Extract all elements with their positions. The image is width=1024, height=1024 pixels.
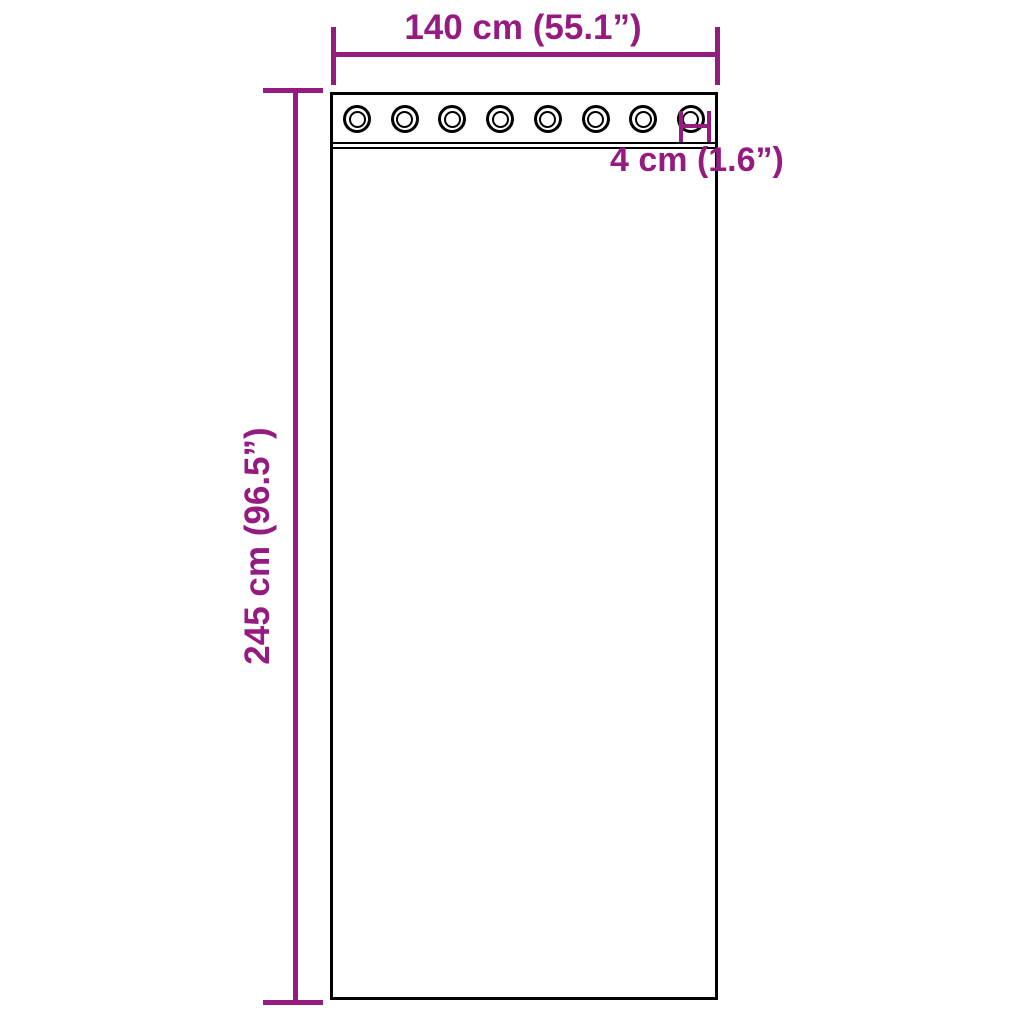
grommet-inner-ring (396, 111, 413, 128)
width-dimension-tick-right (715, 27, 720, 85)
grommet-inner-ring (492, 111, 509, 128)
grommet-dimension-line (679, 124, 711, 128)
grommet-icon (629, 105, 657, 133)
grommet-inner-ring (635, 111, 652, 128)
grommet-inner-ring (539, 111, 556, 128)
diagram-canvas: 140 cm (55.1”) 245 cm (96.5”) 4 cm (1.6”… (0, 0, 1024, 1024)
grommet-icon (534, 105, 562, 133)
height-dimension-tick-top (263, 88, 323, 93)
grommet-icon (391, 105, 419, 133)
curtain-panel (330, 92, 718, 1000)
height-dimension-tick-bottom (263, 1000, 323, 1005)
width-dimension-tick-left (331, 27, 336, 85)
grommet-inner-ring (587, 111, 604, 128)
grommet-dimension-label: 4 cm (1.6”) (610, 141, 784, 180)
grommet-row (333, 105, 715, 133)
grommet-icon (438, 105, 466, 133)
height-dimension-line (293, 90, 298, 1003)
width-dimension-label: 140 cm (55.1”) (404, 8, 641, 48)
grommet-inner-ring (444, 111, 461, 128)
grommet-icon (343, 105, 371, 133)
grommet-icon (582, 105, 610, 133)
height-dimension-label: 245 cm (96.5”) (238, 427, 278, 664)
grommet-icon (486, 105, 514, 133)
width-dimension-line (333, 52, 718, 57)
grommet-inner-ring (349, 111, 366, 128)
